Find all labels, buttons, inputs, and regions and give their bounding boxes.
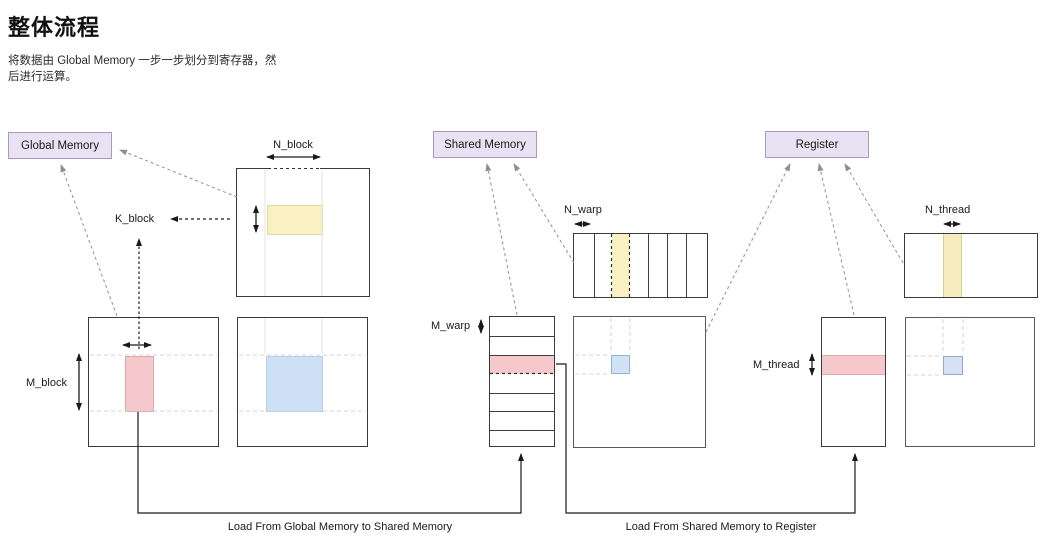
matrix-a-register xyxy=(821,317,886,447)
divider xyxy=(490,355,554,356)
shared-memory-label: Shared Memory xyxy=(433,131,537,158)
dim-label-m-thread: M_thread xyxy=(753,359,799,371)
divider xyxy=(594,234,595,297)
matrix-a-shared xyxy=(489,316,555,447)
page-subtitle: 将数据由 Global Memory 一步一步划分到寄存器，然 后进行运算。 xyxy=(8,54,276,85)
dim-label-n-thread: N_thread xyxy=(925,204,970,216)
subtitle-line-2: 后进行运算。 xyxy=(8,70,276,86)
pointer-aregister-to-register xyxy=(819,164,854,315)
divider xyxy=(686,234,687,297)
pointer-cshared-to-register xyxy=(706,164,790,332)
pointer-ashared-to-shared xyxy=(487,164,517,315)
dim-label-n-warp: N_warp xyxy=(564,204,602,216)
divider xyxy=(490,336,554,337)
pointer-bglobal-to-global xyxy=(120,150,237,197)
divider xyxy=(648,234,649,297)
highlight-yellow-b-global xyxy=(267,205,323,235)
matrix-c-register xyxy=(905,317,1035,447)
matrix-b-register xyxy=(904,233,1038,298)
register-label: Register xyxy=(765,131,869,158)
matrix-c-global xyxy=(237,317,368,447)
highlight-blue-c-register xyxy=(943,356,963,375)
highlight-pink-a-register xyxy=(822,355,885,375)
caption-load-global-to-shared: Load From Global Memory to Shared Memory xyxy=(222,521,458,533)
highlight-yellow-b-shared xyxy=(612,234,630,297)
dim-label-m-block: M_block xyxy=(26,377,67,389)
highlight-yellow-b-register xyxy=(943,234,962,297)
highlight-pink-a-global xyxy=(125,356,154,412)
dim-label-n-block: N_block xyxy=(260,139,326,151)
subtitle-line-1: 将数据由 Global Memory 一步一步划分到寄存器，然 xyxy=(8,54,276,70)
pointer-bregister-to-register xyxy=(845,164,903,263)
diagram-canvas: 整体流程 将数据由 Global Memory 一步一步划分到寄存器，然 后进行… xyxy=(0,0,1042,543)
highlight-blue-c-global xyxy=(266,356,323,412)
highlight-blue-c-shared xyxy=(611,355,630,374)
matrix-b-global xyxy=(236,168,370,297)
divider xyxy=(490,393,554,394)
divider xyxy=(667,234,668,297)
caption-load-shared-to-register: Load From Shared Memory to Register xyxy=(620,521,822,533)
dim-label-m-warp: M_warp xyxy=(431,320,470,332)
divider xyxy=(490,430,554,431)
matrix-c-shared xyxy=(573,316,706,448)
dim-label-k-block: K_block xyxy=(115,213,154,225)
pointer-aglobal-to-global xyxy=(61,165,117,316)
highlight-pink-a-shared xyxy=(490,355,554,374)
page-title: 整体流程 xyxy=(8,10,100,42)
matrix-a-global xyxy=(88,317,219,447)
global-memory-label: Global Memory xyxy=(8,132,112,159)
matrix-b-shared xyxy=(573,233,708,298)
divider xyxy=(490,411,554,412)
pointer-lines xyxy=(61,150,903,332)
